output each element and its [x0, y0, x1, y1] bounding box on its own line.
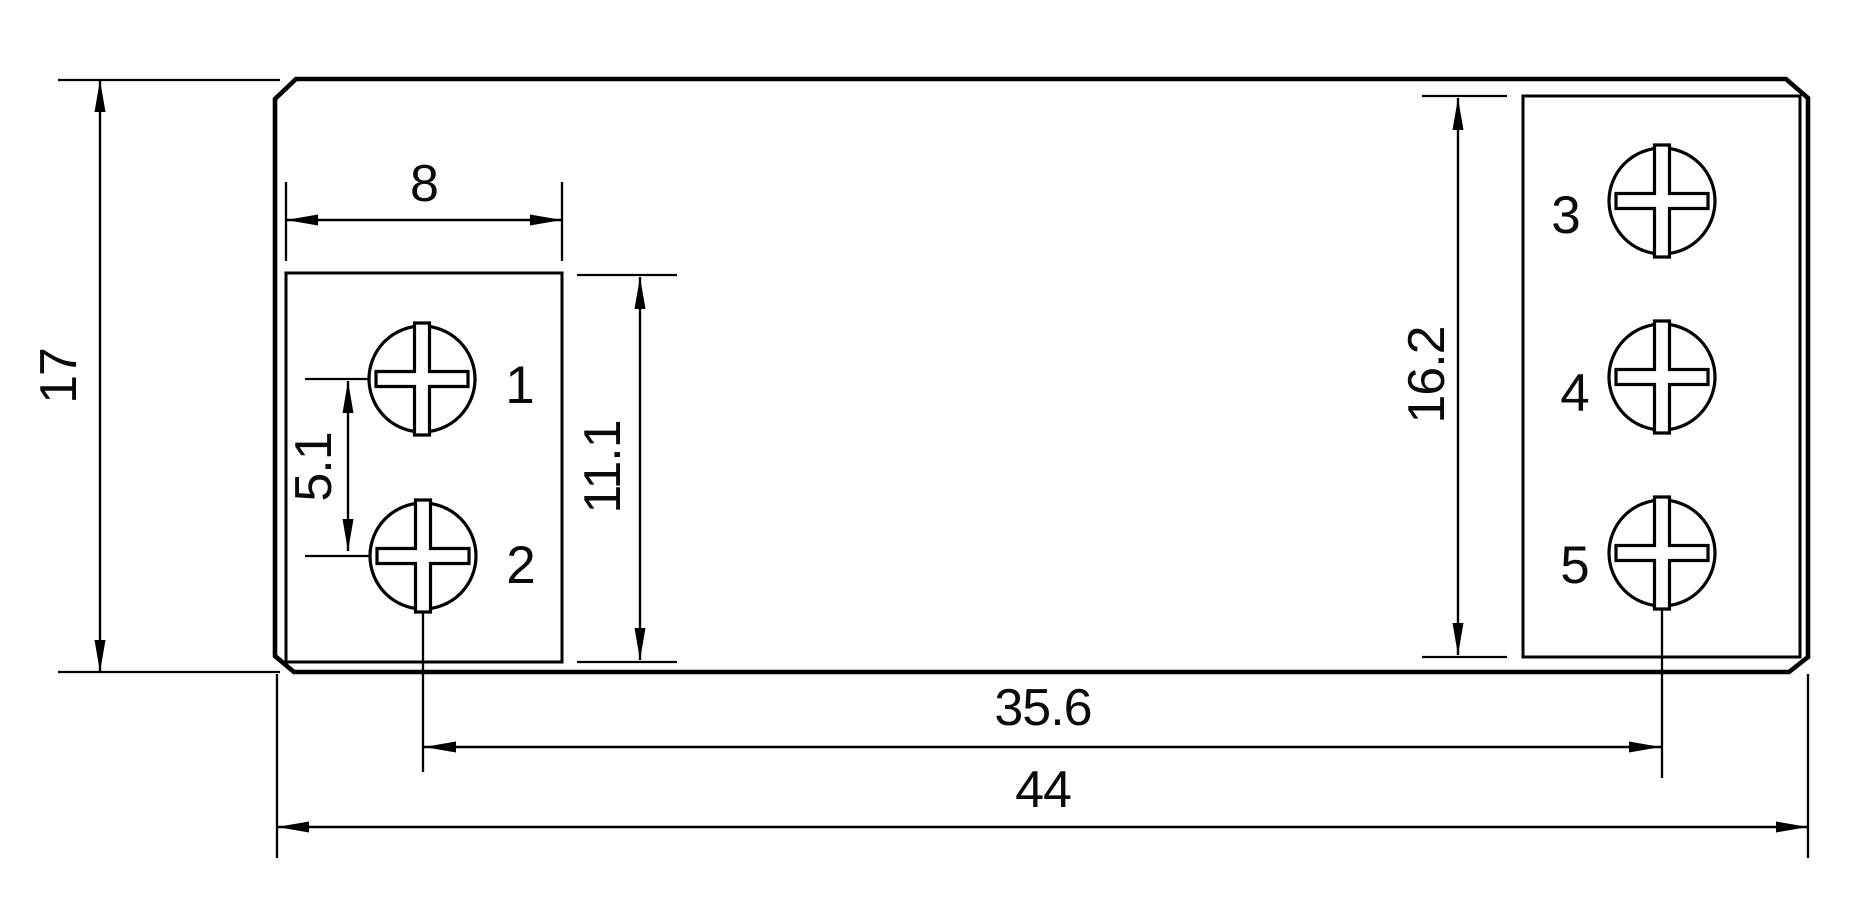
terminal-label-1: 1 [505, 356, 534, 415]
dimension-drawing: 17 8 5.1 11.1 16.2 35.6 44 1 2 3 4 5 [0, 0, 1866, 901]
dim-total-height-label: 17 [30, 348, 88, 404]
dim-pin-pitch-label: 5.1 [285, 432, 343, 501]
arrowhead-left [286, 215, 318, 226]
technical-drawing-canvas: 17 8 5.1 11.1 16.2 35.6 44 1 2 3 4 5 [0, 0, 1866, 901]
arrowhead-down [635, 628, 646, 660]
arrowhead-right [1776, 822, 1808, 833]
arrowhead-up [1453, 98, 1464, 130]
arrowhead-down [1453, 623, 1464, 655]
arrowhead-right [530, 215, 562, 226]
dim-pin-span-label: 35.6 [994, 679, 1091, 737]
arrowhead-up [95, 80, 106, 112]
arrowhead-down [95, 640, 106, 672]
dim-left-pad-height-label: 11.1 [574, 420, 632, 513]
screw-terminal-1 [369, 323, 475, 435]
screw-terminal-4 [1609, 321, 1715, 433]
dim-right-pad-height-label: 16.2 [1398, 326, 1456, 423]
arrowhead-up [635, 277, 646, 309]
dim-total-width-label: 44 [1015, 761, 1071, 819]
arrowhead-right [1629, 742, 1661, 753]
arrowhead-down [343, 519, 354, 551]
terminal-label-2: 2 [506, 536, 535, 595]
terminal-label-4: 4 [1560, 364, 1589, 423]
terminal-label-5: 5 [1560, 536, 1589, 595]
arrowhead-left [424, 742, 456, 753]
dimension-labels: 17 8 5.1 11.1 16.2 35.6 44 [30, 155, 1456, 819]
arrowhead-up [343, 381, 354, 413]
screw-terminal-2 [370, 500, 476, 612]
terminal-label-3: 3 [1551, 186, 1580, 245]
screw-terminal-3 [1609, 145, 1715, 257]
screw-terminal-5 [1609, 497, 1715, 609]
arrowhead-left [277, 822, 309, 833]
dim-pad-width-label: 8 [410, 155, 438, 213]
